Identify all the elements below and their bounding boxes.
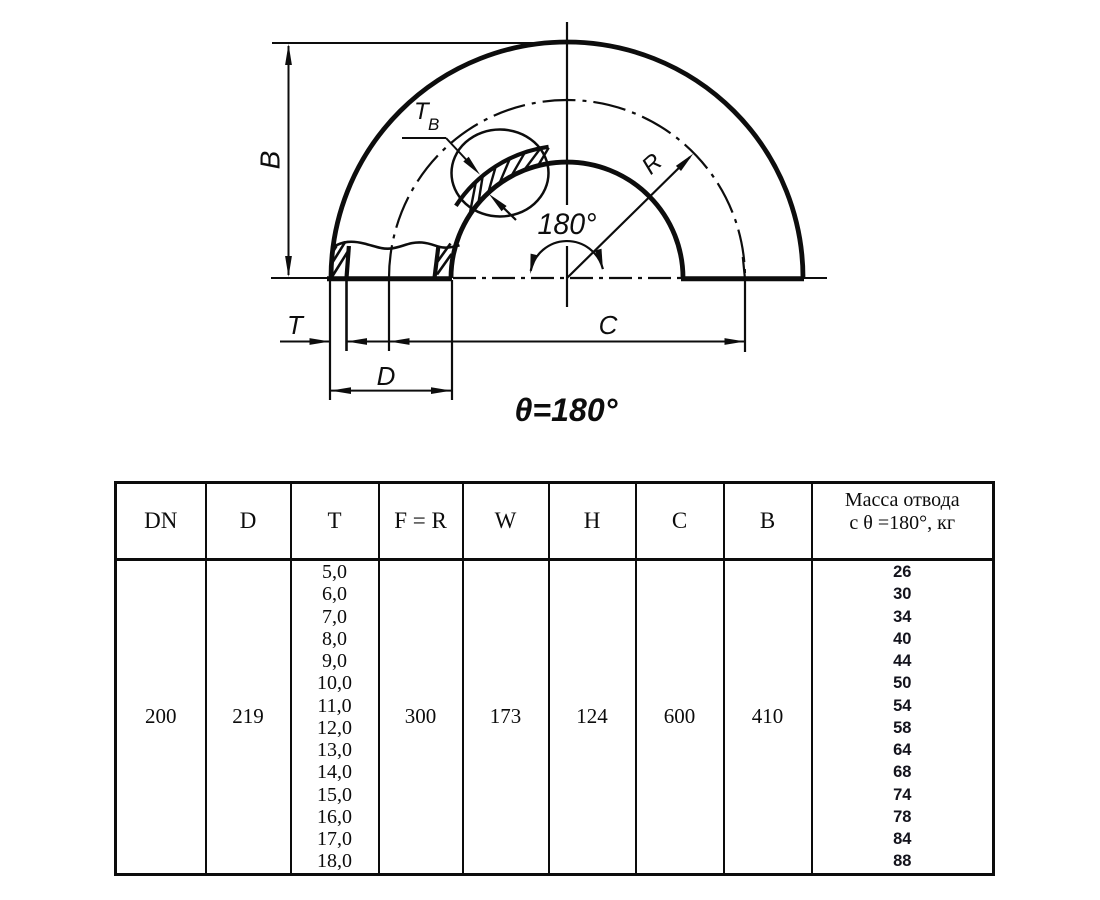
svg-text:θ=180°: θ=180°	[515, 392, 618, 428]
svg-text:B: B	[254, 151, 285, 170]
svg-text:B: B	[428, 115, 439, 134]
svg-text:D: D	[377, 361, 396, 391]
svg-text:180°: 180°	[538, 208, 597, 241]
svg-text:R: R	[637, 148, 668, 180]
svg-text:T: T	[287, 310, 305, 340]
svg-text:C: C	[599, 310, 618, 340]
